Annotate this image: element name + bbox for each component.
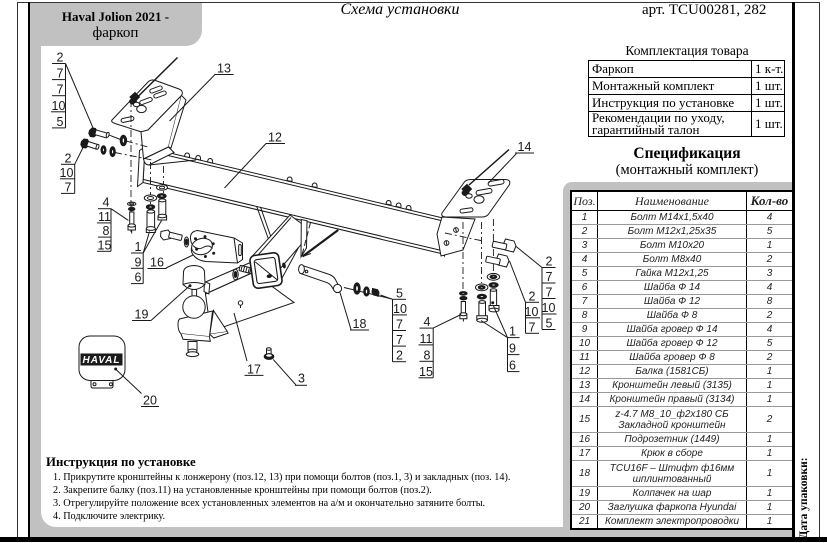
svg-text:11: 11 [420,332,433,346]
svg-text:15: 15 [98,238,112,252]
svg-text:11: 11 [98,210,111,224]
svg-text:15: 15 [419,365,433,379]
svg-text:6: 6 [135,271,142,285]
svg-text:9: 9 [509,342,516,356]
svg-text:10: 10 [52,99,66,113]
svg-text:10: 10 [60,166,74,180]
svg-text:7: 7 [546,270,553,284]
svg-text:14: 14 [518,140,532,154]
svg-text:7: 7 [57,67,64,81]
svg-text:7: 7 [529,320,536,334]
svg-text:2: 2 [65,151,72,165]
svg-text:8: 8 [424,348,431,362]
svg-text:7: 7 [396,318,403,332]
svg-text:7: 7 [65,180,72,194]
svg-text:13: 13 [217,62,231,76]
svg-text:7: 7 [396,333,403,347]
svg-text:18: 18 [353,317,367,331]
svg-text:2: 2 [546,255,553,269]
svg-text:10: 10 [525,305,539,319]
svg-text:2: 2 [57,51,64,65]
svg-text:2: 2 [396,349,403,363]
svg-text:HAVAL: HAVAL [83,355,121,366]
svg-text:10: 10 [393,302,407,316]
svg-text:2: 2 [529,289,536,303]
svg-text:17: 17 [247,363,261,377]
svg-text:1: 1 [509,325,516,339]
svg-text:6: 6 [509,359,516,373]
svg-text:3: 3 [298,372,305,386]
svg-text:4: 4 [103,196,110,210]
svg-text:16: 16 [150,256,164,270]
svg-text:4: 4 [424,315,431,329]
svg-text:10: 10 [542,301,556,315]
svg-text:5: 5 [57,115,64,129]
svg-text:1: 1 [135,240,142,254]
svg-text:7: 7 [57,83,64,97]
svg-text:8: 8 [103,224,110,238]
svg-text:12: 12 [268,131,282,145]
svg-text:19: 19 [135,308,149,322]
svg-text:20: 20 [143,394,157,408]
svg-text:9: 9 [135,255,142,269]
svg-text:5: 5 [396,286,403,300]
svg-text:5: 5 [546,317,553,331]
svg-text:7: 7 [546,286,553,300]
